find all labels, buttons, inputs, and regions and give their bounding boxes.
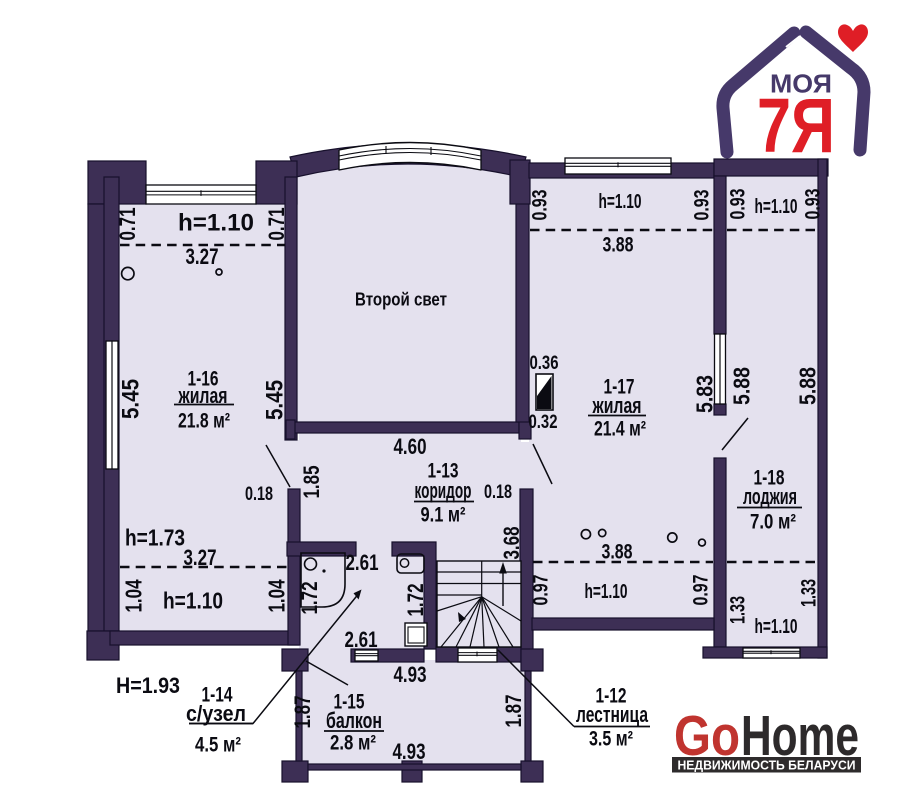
svg-text:с/узел: с/узел [186,701,246,726]
svg-text:0.18: 0.18 [245,484,273,505]
svg-text:0.32: 0.32 [529,412,558,433]
svg-text:1.33: 1.33 [798,579,821,607]
svg-text:3.88: 3.88 [603,234,634,257]
svg-text:2.8 м²: 2.8 м² [330,732,376,755]
svg-text:5.88: 5.88 [728,367,754,405]
svg-text:5.45: 5.45 [262,380,289,420]
svg-text:0.71: 0.71 [115,208,140,241]
svg-text:1.72: 1.72 [403,584,428,617]
svg-text:3.68: 3.68 [499,527,524,560]
svg-text:2.61: 2.61 [346,550,379,575]
svg-text:1.04: 1.04 [120,579,146,612]
svg-text:h=1.10: h=1.10 [163,587,223,613]
svg-text:1.87: 1.87 [290,696,315,729]
svg-text:3.27: 3.27 [186,244,219,269]
svg-text:h=1.10: h=1.10 [585,581,628,603]
svg-text:0.93: 0.93 [691,190,714,221]
svg-text:7Я: 7Я [757,83,835,169]
svg-text:1.33: 1.33 [727,596,750,624]
svg-text:лестница: лестница [576,702,649,727]
svg-text:5.45: 5.45 [118,379,145,419]
svg-text:жилая: жилая [592,393,642,418]
svg-text:1.04: 1.04 [263,579,289,612]
svg-text:0.93: 0.93 [529,190,552,221]
svg-text:3.27: 3.27 [184,545,217,570]
svg-text:балкон: балкон [326,708,382,733]
svg-text:4.93: 4.93 [394,662,427,687]
svg-text:H=1.93: H=1.93 [116,673,180,698]
svg-text:4.93: 4.93 [393,739,426,764]
svg-text:0.97: 0.97 [690,575,713,606]
svg-text:1.85: 1.85 [299,466,324,499]
svg-text:9.1 м²: 9.1 м² [421,504,466,527]
svg-text:0.18: 0.18 [484,482,512,503]
svg-text:21.4 м²: 21.4 м² [594,418,646,441]
svg-text:h=1.73: h=1.73 [125,524,185,550]
svg-text:h=1.10: h=1.10 [755,196,798,218]
svg-text:0.36: 0.36 [530,353,559,374]
svg-text:0.93: 0.93 [802,189,825,220]
svg-text:21.8 м²: 21.8 м² [178,410,230,433]
svg-text:5.88: 5.88 [794,367,820,405]
svg-text:4.60: 4.60 [394,434,427,459]
svg-text:4.5 м²: 4.5 м² [195,734,241,757]
svg-text:3.88: 3.88 [602,541,633,564]
svg-text:коридор: коридор [415,478,472,503]
svg-text:h=1.10: h=1.10 [178,210,254,237]
svg-text:0.71: 0.71 [264,208,289,241]
svg-text:0.93: 0.93 [727,189,750,220]
svg-text:1.87: 1.87 [501,695,526,728]
svg-text:0.97: 0.97 [530,575,553,606]
svg-text:h=1.10: h=1.10 [599,191,642,213]
svg-text:h=1.10: h=1.10 [755,616,798,638]
svg-text:Второй свет: Второй свет [355,289,447,309]
svg-text:7.0 м²: 7.0 м² [750,511,796,534]
svg-text:2.61: 2.61 [345,627,378,652]
svg-text:5.83: 5.83 [691,375,717,413]
svg-text:НЕДВИЖИМОСТЬ БЕЛАРУСИ: НЕДВИЖИМОСТЬ БЕЛАРУСИ [678,758,856,773]
svg-text:лоджия: лоджия [743,484,797,509]
svg-text:1.72: 1.72 [297,582,322,615]
svg-text:3.5 м²: 3.5 м² [589,728,633,751]
